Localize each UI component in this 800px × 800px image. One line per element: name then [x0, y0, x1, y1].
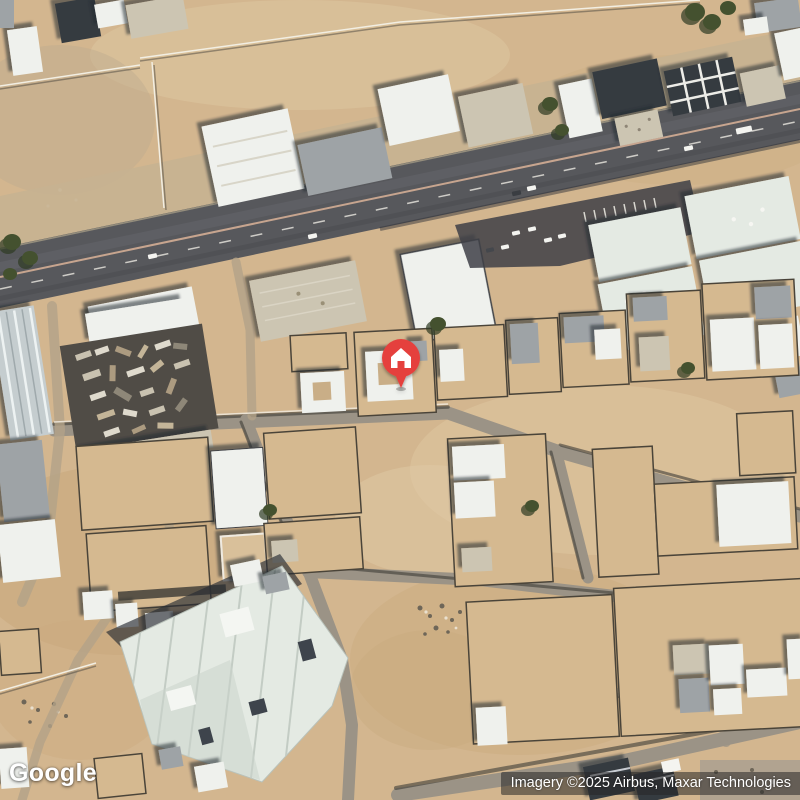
imagery-attribution: Imagery ©2025 Airbus, Maxar Technologies [501, 772, 800, 795]
map-canvas[interactable]: Google Imagery ©2025 Airbus, Maxar Techn… [0, 0, 800, 800]
satellite-imagery [0, 0, 800, 800]
attribution-text: Imagery ©2025 Airbus, Maxar Technologies [511, 775, 791, 791]
google-logo[interactable]: Google [9, 759, 97, 788]
